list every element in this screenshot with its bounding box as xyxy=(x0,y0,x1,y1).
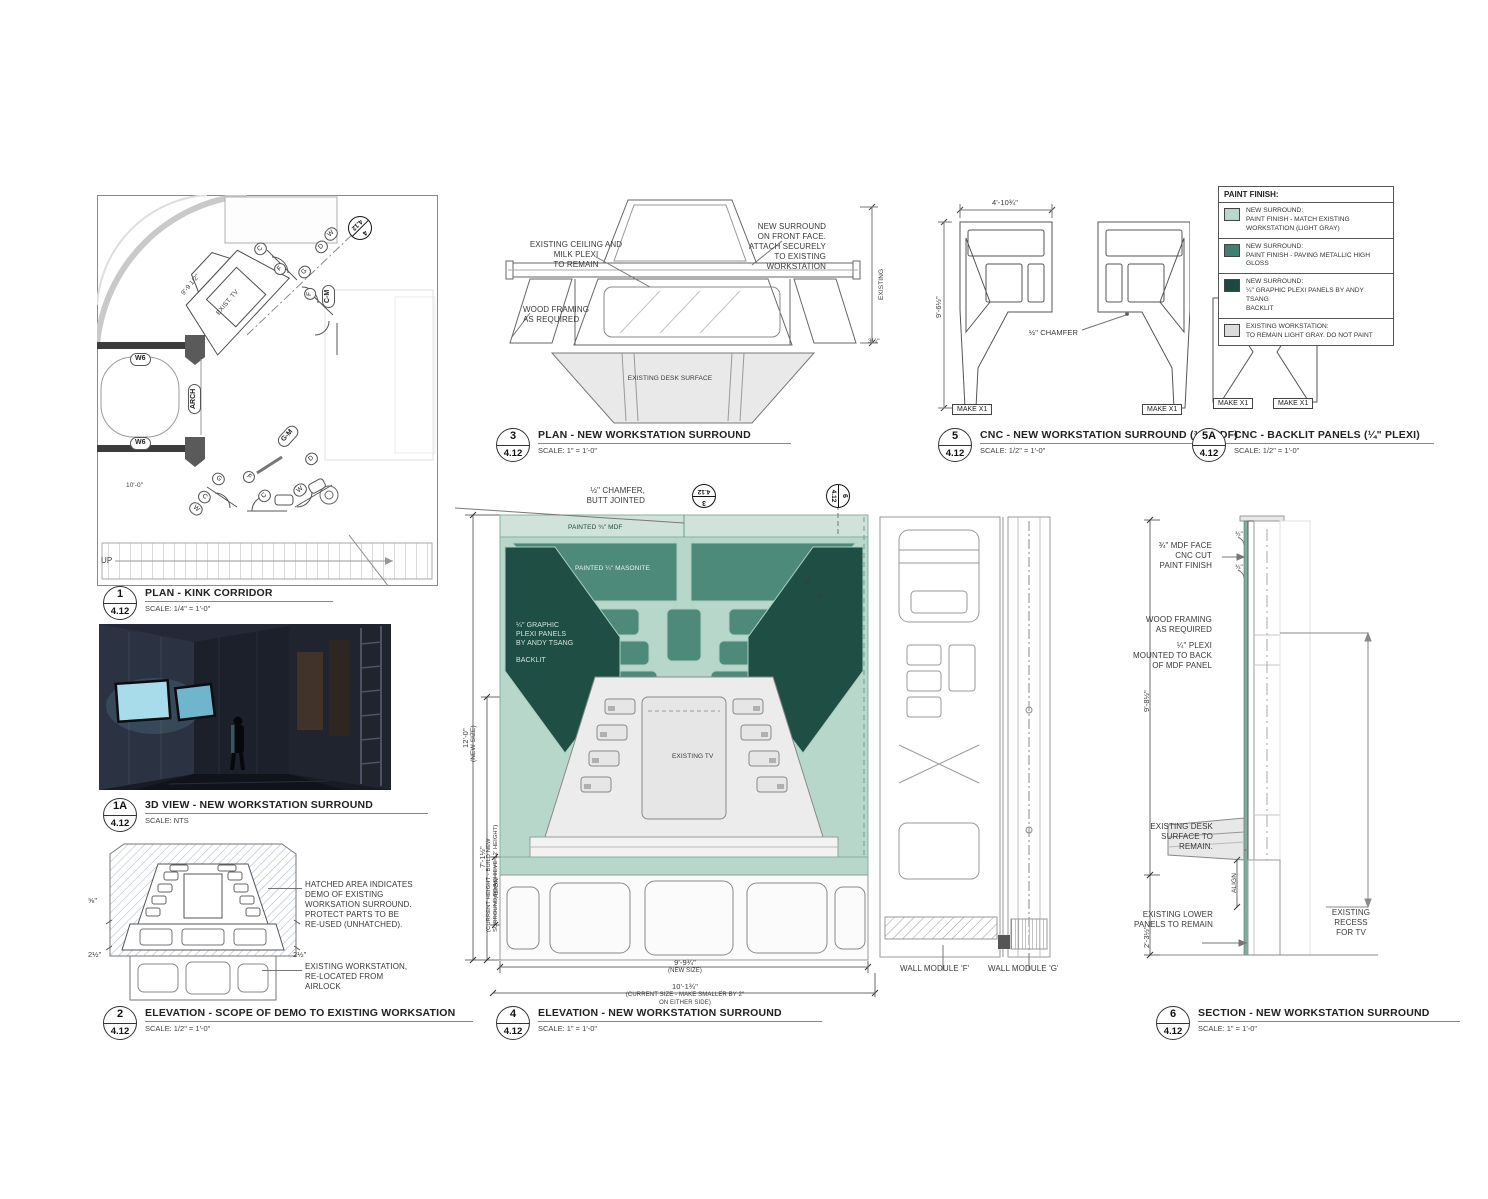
detail-bubble: 1 4.12 xyxy=(103,586,137,620)
drawing-title: PLAN - KINK CORRIDOR xyxy=(145,587,333,602)
dim-three-quarter-b: ¾" xyxy=(1235,564,1243,572)
painted-mdf-label: PAINTED ¾" MDF xyxy=(568,524,623,532)
dim-7-1-sub: (CURRENT HEIGHT - BUILD NEW SURROUND TO … xyxy=(486,812,500,932)
drawing-scale: SCALE: 1" = 1'-0" xyxy=(538,1024,822,1033)
dim-upper-height: 9'-8½" xyxy=(1142,690,1151,712)
dim-12-0: 12'-0" xyxy=(461,728,470,748)
chamfer-note: ½" CHAMFER xyxy=(1028,328,1078,337)
leader-line xyxy=(268,888,302,889)
titleblock-1: 1 4.12 PLAN - KINK CORRIDOR SCALE: 1/4" … xyxy=(103,586,333,620)
demo-hatch-note: HATCHED AREA INDICATES DEMO OF EXISTING … xyxy=(305,880,417,930)
swatch-existing-gray xyxy=(1224,324,1240,337)
plan-kink-corridor-drawing xyxy=(97,195,438,586)
detail-bubble: 5A 4.12 xyxy=(1192,428,1226,462)
dim-demo-c: 2½" xyxy=(293,950,306,959)
titleblock-3: 3 4.12 PLAN - NEW WORKSTATION SURROUND S… xyxy=(496,428,791,462)
desk-surface-label: EXISTING DESK SURFACE xyxy=(610,375,730,383)
make-x1-tag: MAKE X1 xyxy=(1213,398,1253,409)
dim-12-0-sub: (NEW SIZE) xyxy=(470,725,478,762)
detail-bubble: 6 4.12 xyxy=(1156,1006,1190,1040)
plexi-back-note: ¼" PLEXI MOUNTED TO BACK OF MDF PANEL xyxy=(1117,641,1212,671)
make-x1-tag: MAKE X1 xyxy=(952,404,992,415)
dim-small: 3¼" xyxy=(868,338,880,346)
dim-lower-height: 2'-3½" xyxy=(1142,926,1151,948)
legend-item: EXISTING WORKSTATION: TO REMAIN LIGHT GR… xyxy=(1219,319,1393,345)
existing-dim-label: EXISTING xyxy=(878,269,886,300)
align-label: ALIGN xyxy=(493,878,501,898)
drawing-scale: SCALE: 1" = 1'-0" xyxy=(1198,1024,1460,1033)
painted-masonite-label: PAINTED ¼" MASONITE xyxy=(575,565,650,573)
recess-tv-note: EXISTING RECESS FOR TV xyxy=(1322,908,1380,938)
detail-bubble: 1A 4.12 xyxy=(103,798,137,832)
dim-width-cur-sub: (CURRENT SIZE - MAKE SMALLER BY 2" ON EI… xyxy=(605,992,765,1007)
elevation-new-surround-drawing xyxy=(455,505,1065,1005)
dim-demo-b: 2½" xyxy=(88,950,101,959)
cnc-height-dim: 9'-6½" xyxy=(934,296,943,318)
lower-panels-note: EXISTING LOWER PANELS TO REMAIN xyxy=(1128,910,1213,930)
door-tag: F xyxy=(304,288,316,300)
titleblock-1a: 1A 4.12 3D VIEW - NEW WORKSTATION SURROU… xyxy=(103,798,428,832)
detail-bubble: 2 4.12 xyxy=(103,1006,137,1040)
section-marker-6: 6 4.12 xyxy=(826,484,850,508)
dim-demo-a: ⅝" xyxy=(88,896,97,905)
mdf-face-note: ¾" MDF FACE CNC CUT PAINT FINISH xyxy=(1132,541,1212,571)
titleblock-5a: 5A 4.12 CNC - BACKLIT PANELS (¼" PLEXI) … xyxy=(1192,428,1434,462)
framing-note: WOOD FRAMING AS REQUIRED xyxy=(523,305,593,325)
drawing-title: PLAN - NEW WORKSTATION SURROUND xyxy=(538,429,791,444)
paint-finish-legend: PAINT FINISH: NEW SURROUND: PAINT FINISH… xyxy=(1218,186,1394,346)
drawing-scale: SCALE: 1" = 1'-0" xyxy=(538,446,791,455)
cnc-width-dim: 4'-10¾" xyxy=(975,198,1035,207)
up-label: UP xyxy=(101,556,112,566)
dim-width-new: 9'-9¾" xyxy=(640,958,730,967)
plexi-panels-label: ¼" GRAPHIC PLEXI PANELS BY ANDY TSANG BA… xyxy=(516,622,580,666)
legend-item: NEW SURROUND: PAINT FINISH - MATCH EXIST… xyxy=(1219,203,1393,239)
legend-title: PAINT FINISH: xyxy=(1219,187,1393,203)
demo-existing-note: EXISTING WORKSTATION, RE-LOCATED FROM AI… xyxy=(305,962,417,992)
wall-tag-w6: W6 xyxy=(130,437,151,450)
swatch-dark-plexi xyxy=(1224,279,1240,292)
drawing-title: ELEVATION - SCOPE OF DEMO TO EXISTING WO… xyxy=(145,1007,473,1022)
titleblock-2: 2 4.12 ELEVATION - SCOPE OF DEMO TO EXIS… xyxy=(103,1006,473,1040)
dim-width-cur: 10'-1¾" xyxy=(640,982,730,991)
align-label: ALIGN xyxy=(1231,873,1239,893)
detail-bubble: 4 4.12 xyxy=(496,1006,530,1040)
dim-width-new-sub: (NEW SIZE) xyxy=(640,968,730,976)
drawing-title: 3D VIEW - NEW WORKSTATION SURROUND xyxy=(145,799,428,814)
titleblock-6: 6 4.12 SECTION - NEW WORKSTATION SURROUN… xyxy=(1156,1006,1460,1040)
arch-tag: ARCH xyxy=(188,384,201,414)
surround-note: NEW SURROUND ON FRONT FACE. ATTACH SECUR… xyxy=(738,222,826,272)
swatch-light-gray-teal xyxy=(1224,208,1240,221)
detail-bubble: 3 4.12 xyxy=(496,428,530,462)
drawing-title: CNC - BACKLIT PANELS (¼" PLEXI) xyxy=(1234,429,1434,444)
leader-line xyxy=(262,970,302,971)
legend-item: NEW SURROUND: PAINT FINISH - PAVING META… xyxy=(1219,239,1393,275)
drawing-title: ELEVATION - NEW WORKSTATION SURROUND xyxy=(538,1007,822,1022)
desk-remain-note: EXISTING DESK SURFACE TO REMAIN. xyxy=(1128,822,1213,852)
legend-item: NEW SURROUND: ¼" GRAPHIC PLEXI PANELS BY… xyxy=(1219,274,1393,319)
wood-framing-note: WOOD FRAMING AS REQUIRED xyxy=(1127,615,1212,635)
titleblock-4: 4 4.12 ELEVATION - NEW WORKSTATION SURRO… xyxy=(496,1006,822,1040)
dim-10-0: 10'-0" xyxy=(126,482,143,490)
detail-bubble: 5 4.12 xyxy=(938,428,972,462)
wall-module-f-label: WALL MODULE 'F' xyxy=(900,964,969,974)
cnc-mdf-drawing xyxy=(930,190,1190,430)
chamfer-note: ½" CHAMFER, BUTT JOINTED xyxy=(560,486,645,506)
demo-elevation-drawing xyxy=(100,838,306,1008)
dim-three-quarter-a: ¾" xyxy=(1235,531,1243,539)
drawing-title: SECTION - NEW WORKSTATION SURROUND xyxy=(1198,1007,1460,1022)
ceiling-note: EXISTING CEILING AND MILK PLEXI TO REMAI… xyxy=(520,240,632,270)
wall-module-g-label: WALL MODULE 'G' xyxy=(988,964,1059,974)
drawing-scale: SCALE: 1/2" = 1'-0" xyxy=(145,1024,473,1033)
drawing-scale: SCALE: NTS xyxy=(145,816,428,825)
existing-tv-label: EXISTING TV xyxy=(672,753,713,761)
wall-tag-w6: W6 xyxy=(130,353,151,366)
make-x1-tag: MAKE X1 xyxy=(1273,398,1313,409)
3d-view-image xyxy=(99,624,391,790)
drawing-scale: SCALE: 1/2" = 1'-0" xyxy=(1234,446,1434,455)
section-marker-3: 3 4.12 xyxy=(692,484,716,508)
drawing-sheet: W6 W6 ARCH C-M G-M EXIST. TV 9'-9 1/2" 1… xyxy=(0,0,1488,1199)
door-tag-cm: C-M xyxy=(322,285,335,308)
make-x1-tag: MAKE X1 xyxy=(1142,404,1182,415)
drawing-scale: SCALE: 1/4" = 1'-0" xyxy=(145,604,333,613)
swatch-metallic-teal xyxy=(1224,244,1240,257)
